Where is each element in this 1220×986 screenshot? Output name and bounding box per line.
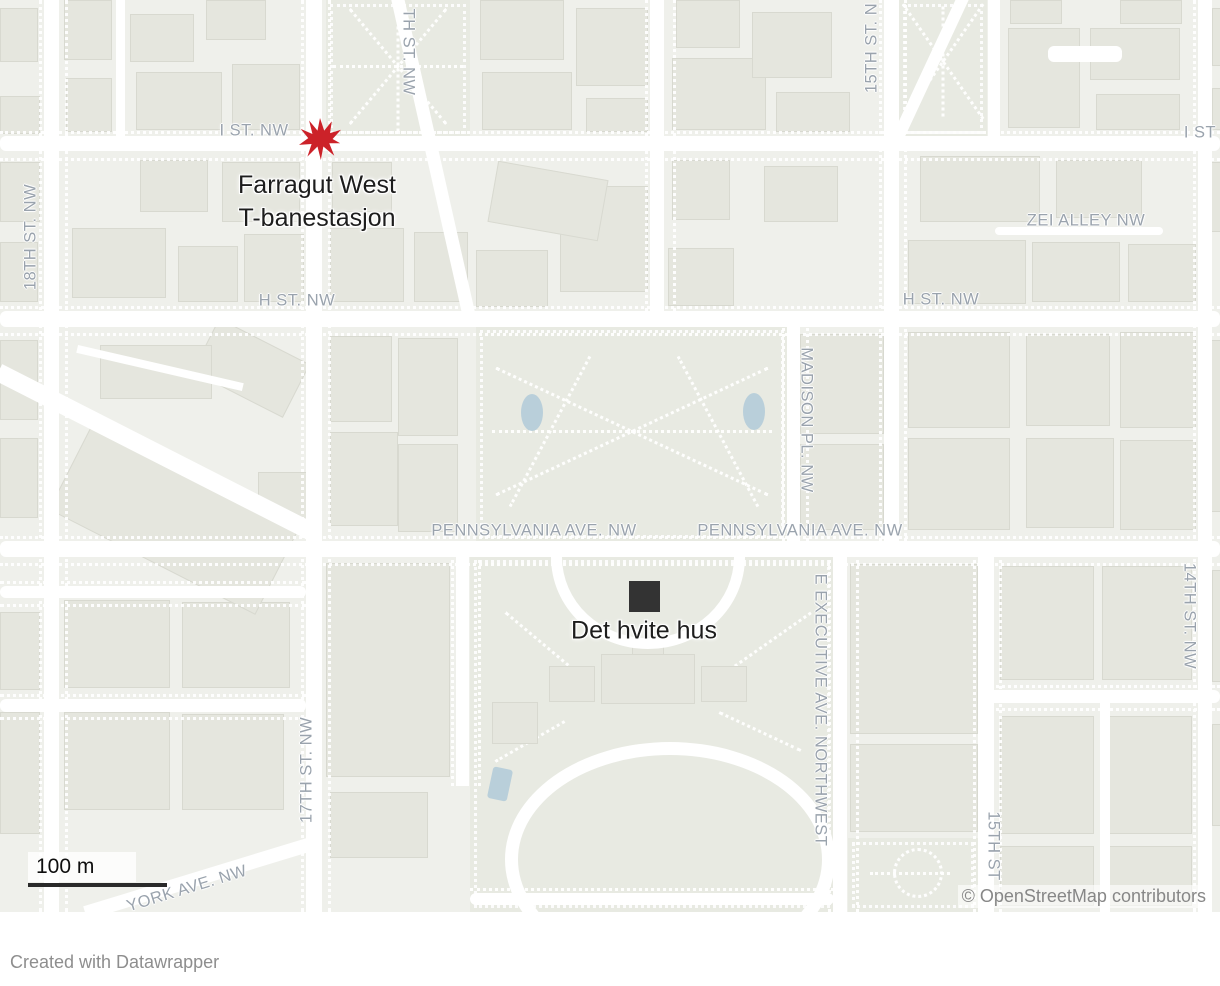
sidewalk-dots — [0, 131, 1220, 134]
building — [130, 14, 194, 62]
park-path-circle — [893, 848, 943, 898]
sidewalk-dots — [645, 0, 648, 311]
road — [985, 690, 1220, 703]
farragut-west-label-line1: Farragut West — [238, 169, 396, 202]
building — [1120, 0, 1182, 24]
sidewalk-dots — [470, 888, 834, 891]
building — [64, 0, 112, 60]
sidewalk-dots — [973, 541, 976, 912]
map-canvas: I ST. NW 18TH ST. NW TH ST. NW 15TH ST. … — [0, 0, 1220, 912]
map-scale-label: 100 m — [28, 852, 136, 882]
building — [586, 98, 648, 132]
sidewalk-dots — [985, 708, 1220, 711]
building — [0, 712, 40, 834]
sidewalk-dots — [673, 0, 676, 311]
sidewalk-dots — [0, 581, 306, 584]
building — [64, 600, 170, 688]
osm-attribution-link[interactable]: © OpenStreetMap contributors — [958, 885, 1210, 908]
street-label-zei-alley-nw: ZEI ALLEY NW — [1027, 212, 1146, 231]
street-label-15th-st-bottom: 15TH ST — [984, 811, 1003, 881]
building — [330, 228, 404, 302]
road — [116, 0, 125, 136]
white-house-label: Det hvite hus — [571, 615, 717, 648]
building — [1212, 724, 1220, 826]
street-label-pennsylvania-ave-east: PENNSYLVANIA AVE. NW — [697, 522, 902, 541]
building — [1102, 716, 1192, 834]
building — [908, 332, 1010, 428]
building — [1026, 334, 1110, 426]
datawrapper-locator-map: I ST. NW 18TH ST. NW TH ST. NW 15TH ST. … — [0, 0, 1220, 986]
sidewalk-dots — [782, 311, 785, 541]
building — [178, 246, 238, 302]
road — [456, 541, 469, 786]
road — [1048, 46, 1122, 62]
building — [1096, 94, 1180, 130]
building — [672, 160, 730, 220]
white-house-building — [701, 666, 747, 702]
street-label-18th-st-nw: 18TH ST. NW — [22, 184, 41, 290]
sidewalk-dots — [0, 333, 1220, 336]
building — [330, 432, 398, 526]
building — [480, 0, 564, 60]
building — [776, 92, 850, 132]
building — [1000, 566, 1094, 680]
sidewalk-dots — [856, 541, 859, 912]
sidewalk-dots — [451, 541, 454, 786]
road — [650, 0, 664, 311]
building — [1128, 244, 1196, 302]
sidewalk-dots — [478, 541, 481, 786]
building — [920, 156, 1040, 222]
water-feature — [743, 393, 765, 430]
datawrapper-credit-link[interactable]: Created with Datawrapper — [10, 952, 219, 973]
building — [482, 72, 572, 130]
building — [576, 8, 648, 86]
building — [1026, 438, 1114, 528]
building — [232, 64, 300, 130]
water-feature — [521, 394, 543, 431]
street-label-madison-pl-nw: MADISON PL. NW — [797, 347, 816, 492]
white-house-square-marker-icon — [629, 581, 660, 612]
building — [1056, 160, 1142, 218]
road — [0, 699, 306, 712]
sidewalk-dots — [904, 0, 907, 541]
building — [908, 438, 1010, 530]
road — [470, 893, 834, 905]
building — [330, 792, 428, 858]
building — [1102, 566, 1192, 680]
road — [833, 541, 847, 912]
building — [1000, 716, 1094, 834]
building — [476, 250, 548, 307]
park — [476, 326, 788, 542]
road — [0, 311, 1220, 327]
street-label-e-executive-ave: E EXECUTIVE AVE. NORTHWEST — [811, 574, 830, 847]
building — [0, 96, 40, 134]
street-label-pennsylvania-ave-west: PENNSYLVANIA AVE. NW — [431, 522, 636, 541]
sidewalk-dots — [985, 685, 1220, 688]
building — [398, 338, 458, 436]
building — [1008, 28, 1080, 128]
building — [1212, 570, 1220, 682]
building — [1120, 440, 1196, 530]
building — [668, 248, 734, 306]
building — [850, 744, 978, 832]
building — [330, 336, 392, 422]
street-label-i-st-nw: I ST. NW — [219, 122, 288, 141]
building — [0, 8, 38, 62]
building — [66, 78, 112, 132]
building — [676, 0, 740, 48]
building — [0, 612, 40, 690]
farragut-west-label-line2: T-banestasjon — [238, 202, 396, 235]
street-label-17th-st-nw-top: TH ST. NW — [399, 9, 418, 96]
building — [752, 12, 832, 78]
building — [1212, 8, 1220, 66]
building — [850, 564, 978, 734]
road — [988, 0, 1000, 136]
road — [0, 586, 306, 598]
building — [398, 444, 458, 532]
building — [182, 602, 290, 688]
street-label-14th-st-nw: 14TH ST. NW — [1180, 563, 1199, 669]
building — [764, 166, 838, 222]
building — [182, 714, 284, 810]
sidewalk-dots — [65, 0, 68, 912]
building — [136, 72, 222, 130]
building — [326, 563, 450, 777]
sidewalk-dots — [0, 604, 306, 607]
sidewalk-dots — [39, 0, 42, 912]
road — [0, 136, 1220, 151]
building — [1010, 0, 1062, 24]
sidewalk-dots — [0, 158, 1220, 161]
building — [206, 0, 266, 40]
street-label-h-st-nw-east: H ST. NW — [903, 291, 979, 310]
street-label-17th-st-nw-bottom: 17TH ST. NW — [298, 717, 317, 823]
road — [884, 0, 899, 541]
sidewalk-dots — [0, 717, 306, 720]
street-label-15th-st-n: 15TH ST. N — [863, 3, 882, 93]
road — [0, 541, 1220, 557]
building — [140, 160, 208, 212]
map-scale-bar: 100 m — [28, 852, 167, 887]
building — [64, 712, 170, 810]
farragut-west-star-marker-icon — [299, 117, 341, 161]
farragut-west-label: Farragut West T-banestasjon — [238, 169, 396, 235]
street-label-i-st-right: I ST — [1184, 124, 1216, 143]
sidewalk-dots — [0, 563, 1220, 566]
sidewalk-dots — [0, 694, 306, 697]
building — [72, 228, 166, 298]
footer: Created with Datawrapper — [0, 912, 1220, 986]
white-house-building — [549, 666, 595, 702]
sidewalk-dots — [0, 306, 1220, 309]
white-house-building — [492, 702, 538, 744]
building — [487, 161, 608, 242]
map-scale-line — [28, 883, 167, 887]
building — [1120, 332, 1196, 428]
street-label-h-st-nw-west: H ST. NW — [259, 292, 335, 311]
building — [0, 438, 38, 518]
white-house-building — [601, 654, 695, 704]
building — [1032, 242, 1120, 302]
road — [1100, 703, 1110, 912]
